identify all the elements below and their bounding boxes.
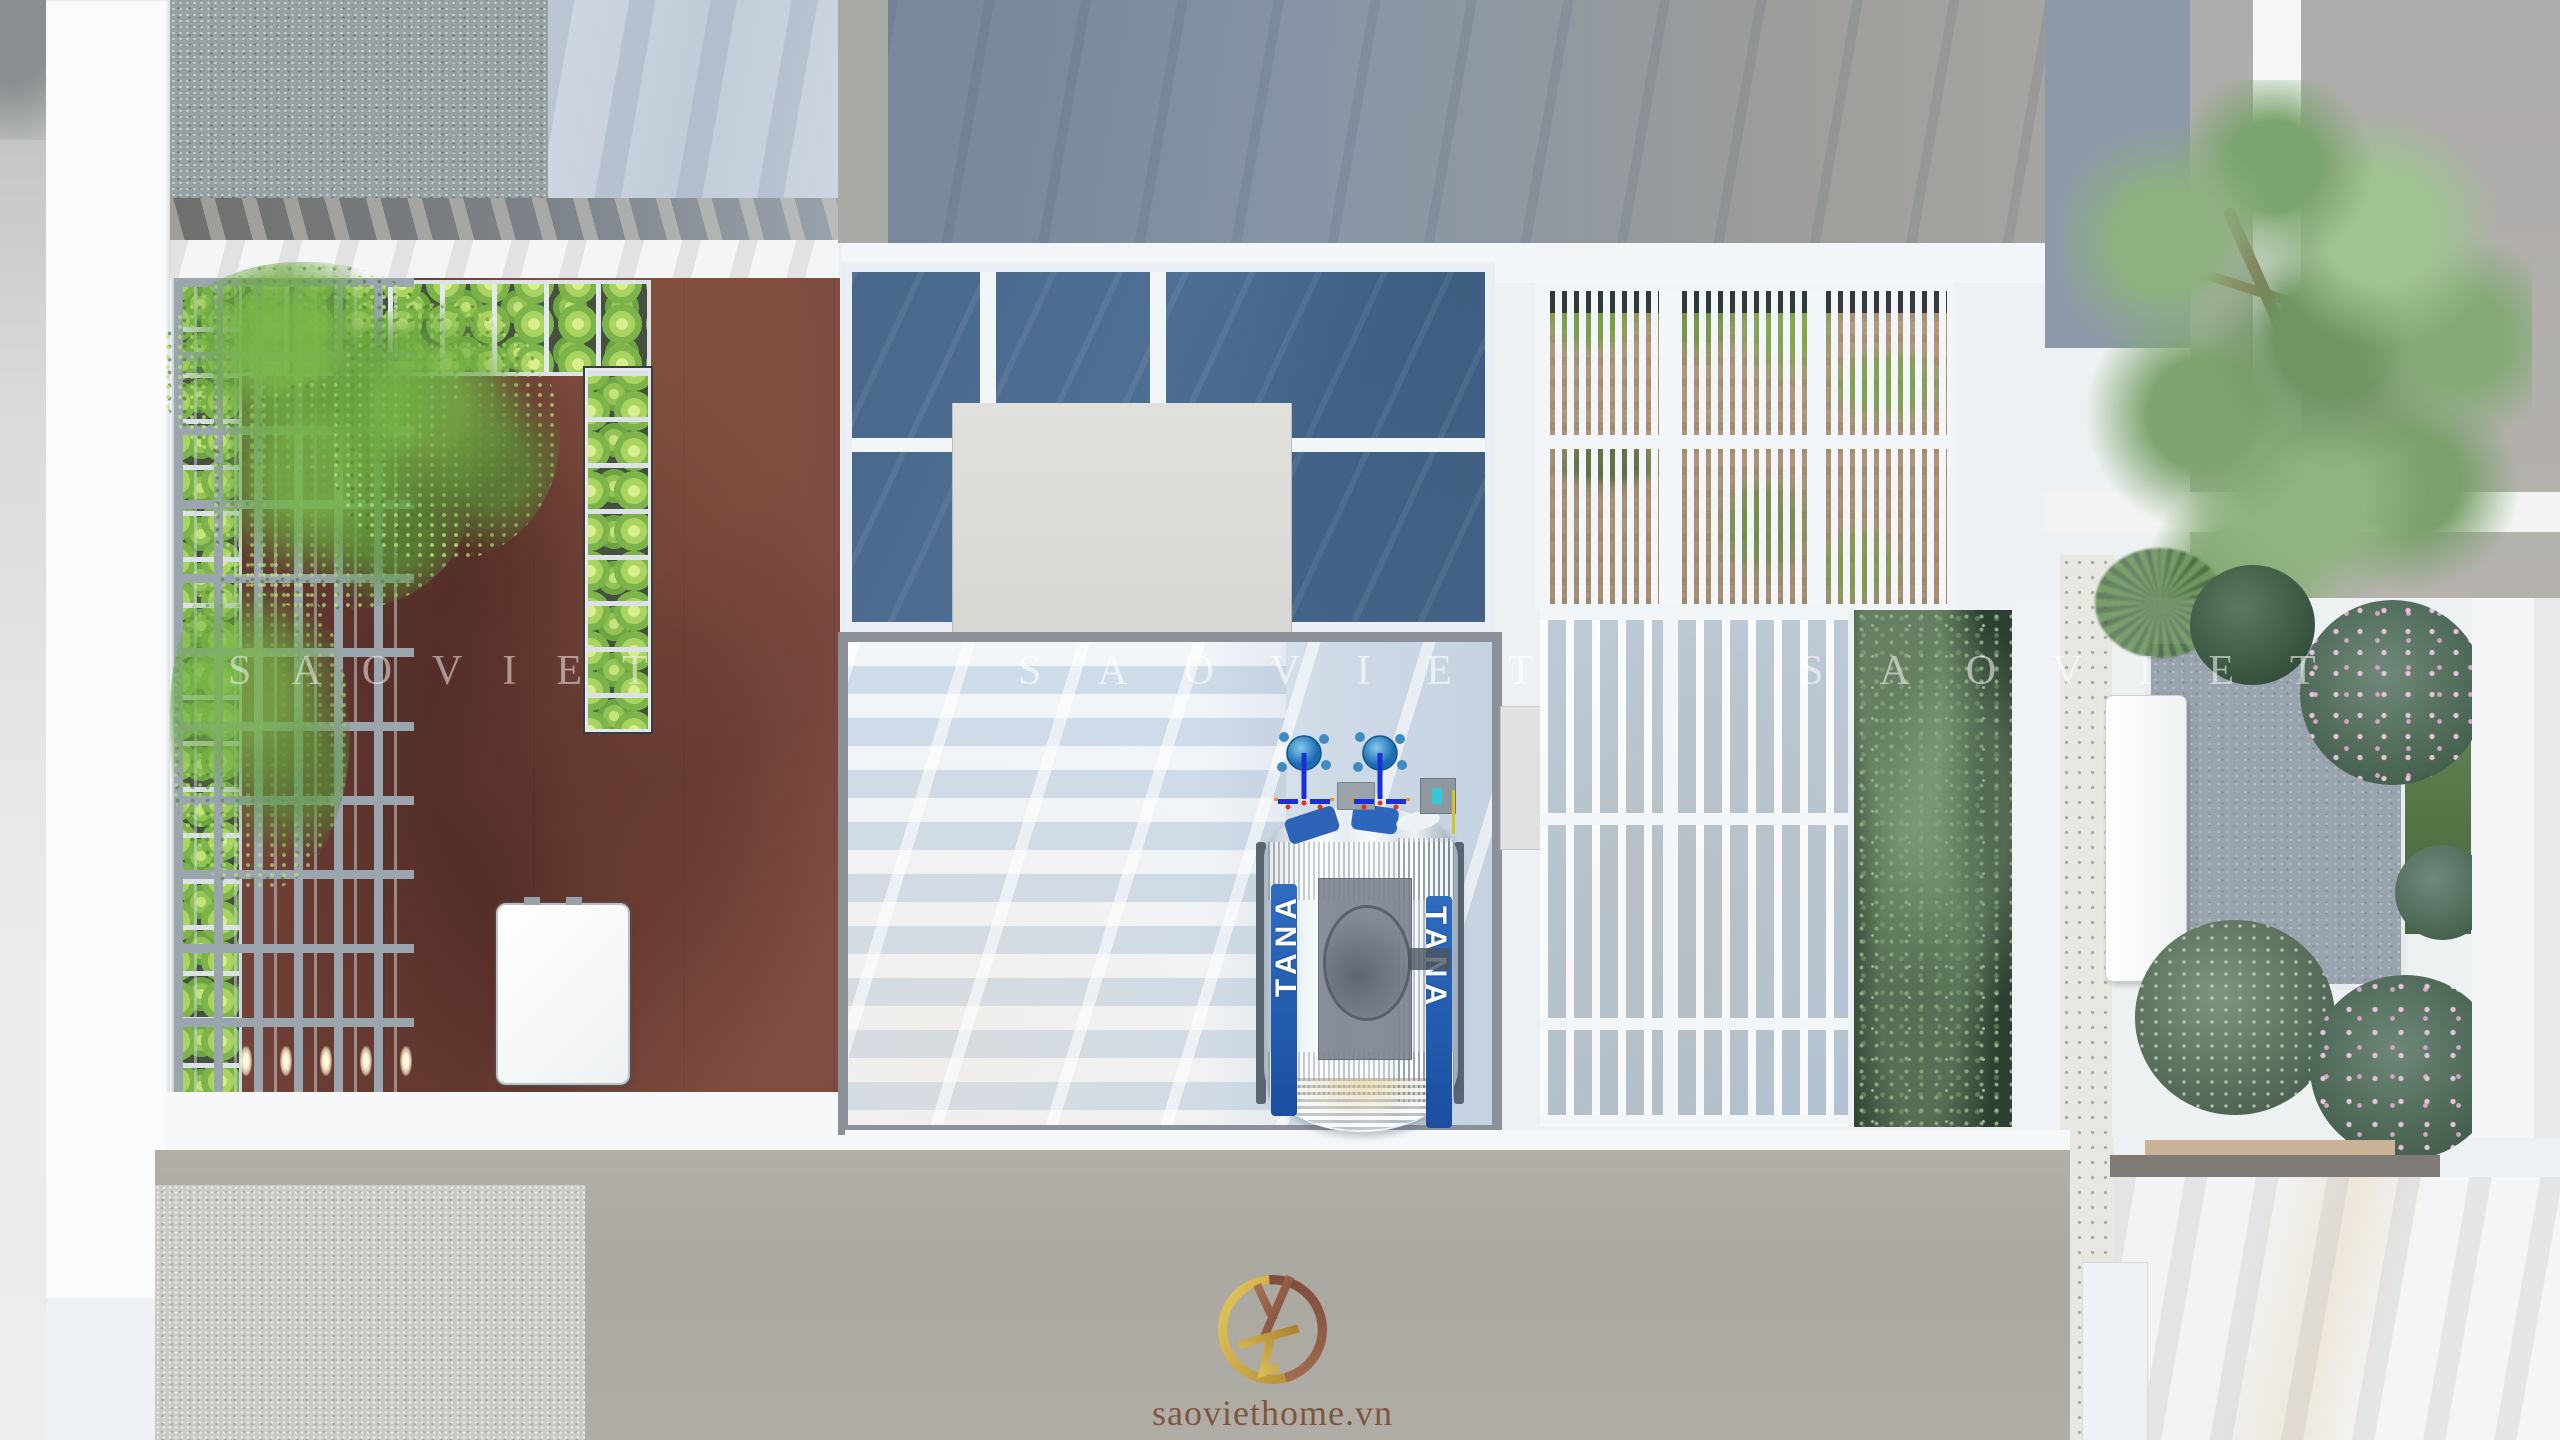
outdoor-table	[496, 903, 630, 1085]
roof-hatch-panel	[952, 403, 1292, 632]
top-shadow-wall-streaks	[888, 0, 2045, 243]
watermark-left: SAOVIET	[228, 645, 688, 697]
courtyard-right-edge	[2534, 598, 2560, 1138]
curtain-mullion-vertical	[1663, 610, 1677, 1127]
tank-brand-label: TANA	[1270, 892, 1296, 997]
left-edge-wall	[0, 0, 46, 1440]
shrub-large	[2135, 920, 2335, 1115]
curtain-mullion-horizontal	[1540, 1018, 1848, 1030]
louver-mullion-horizontal	[1543, 435, 1947, 449]
tank-label-stripe-left: TANA	[1271, 884, 1297, 1116]
logo-text: saoviethome.vn	[1080, 1392, 1465, 1434]
neighbor-roof-texture	[170, 0, 548, 200]
left-section-walkway	[165, 1092, 845, 1150]
rooftop-render: TANA TANA SAOVIET	[0, 0, 2560, 1440]
deck-light	[240, 1046, 252, 1076]
watermark-center: SAOVIET	[1018, 645, 1590, 697]
valve-symbol	[1348, 727, 1412, 813]
deck-light	[400, 1046, 412, 1076]
table-handle	[566, 897, 582, 905]
tank-label-stripe-right: TANA	[1426, 896, 1452, 1128]
bottom-right-dark-band	[2110, 1155, 2440, 1177]
curtain-mullion-horizontal	[1540, 813, 1848, 825]
curtain-mullion-horizontal	[1540, 610, 1848, 620]
bottom-right-light-area	[2114, 1177, 2560, 1440]
tank-manhole-plate	[1318, 878, 1412, 1060]
tank-tie-bar	[1408, 948, 1450, 970]
deck-light	[360, 1046, 372, 1076]
top-left-shadow-streaks	[548, 0, 838, 200]
courtyard-right-wall	[2472, 598, 2534, 1138]
deck-light	[320, 1046, 332, 1076]
ground-terrazzo	[155, 1185, 585, 1440]
table-handle	[524, 897, 540, 905]
left-white-column	[46, 0, 170, 1300]
watermark-right: SAOVIET	[1800, 645, 2372, 697]
left-parapet-mottle	[170, 198, 838, 240]
bottom-deck-white-panel	[2082, 1262, 2148, 1440]
deck-light	[280, 1046, 292, 1076]
bottom-right-wood-strip	[2145, 1140, 2395, 1156]
curtain-mullion-horizontal	[1540, 1115, 1848, 1127]
tank-manhole-lid	[1323, 905, 1411, 1021]
valve-symbol	[1272, 727, 1336, 813]
sensor-wire	[1452, 790, 1455, 834]
louver-roof	[1535, 283, 1955, 610]
logo-emblem	[1205, 1262, 1340, 1397]
top-warm-strip	[838, 0, 888, 243]
sensor-light	[1432, 788, 1442, 804]
tank-sensor-box	[1420, 778, 1456, 814]
